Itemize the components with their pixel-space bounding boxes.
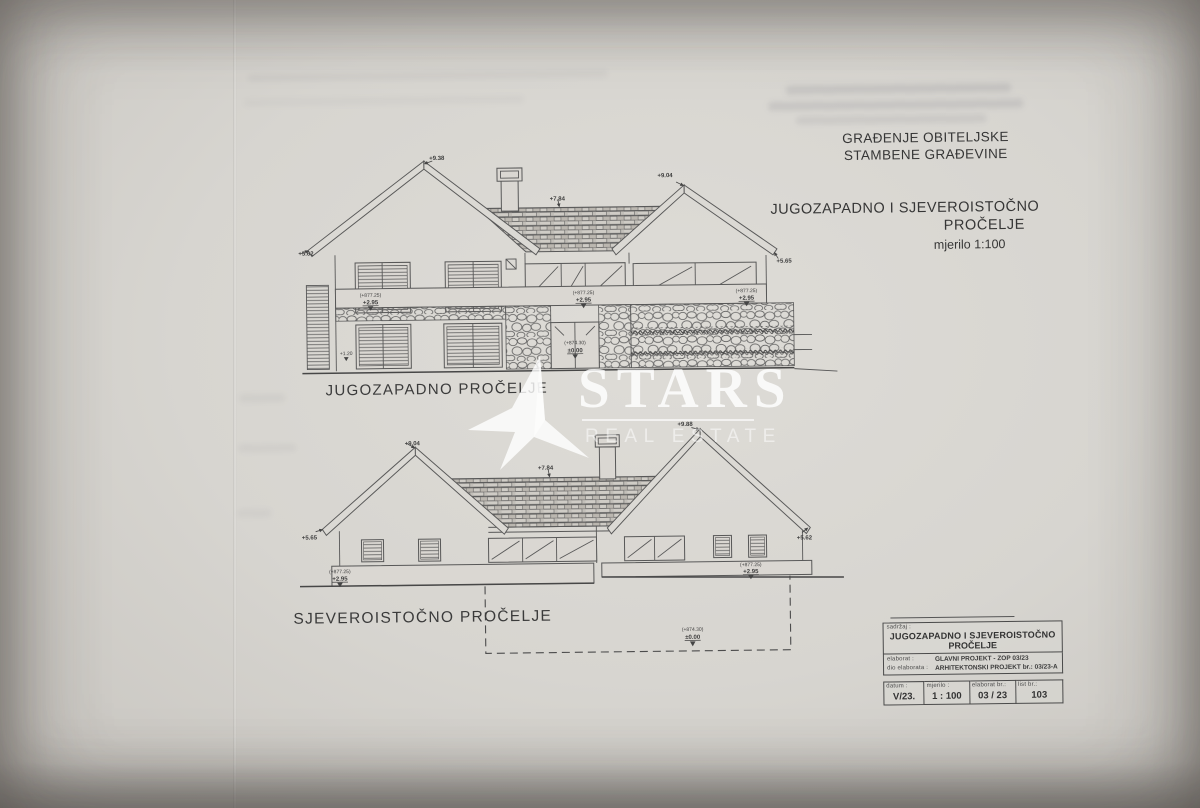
list-br-cell: list br.: 103 [1016,679,1063,704]
svg-text:+1.20: +1.20 [340,351,353,357]
svg-text:(+877.25): (+877.25) [740,562,762,568]
elaborat-br-cell: elaborat br.: 03 / 23 [970,680,1017,705]
title-block-content: sadržaj : JUGOZAPADNO I SJEVEROISTOČNO P… [882,620,1062,654]
title-block-rule [890,616,1014,619]
level-label-plinth: +1.20 [340,351,353,361]
level-label-basement: (+874.30) ±0.00 [682,627,704,647]
watermark-divider [582,419,754,421]
watermark-brand: STARS [578,356,793,421]
svg-text:(+874.30): (+874.30) [682,627,704,633]
content-line2: PROČELJE [887,639,1059,651]
photographed-drawing-sheet: GRAĐENJE OBITELJSKE STAMBENE GRAĐEVINE J… [0,0,1200,808]
project-row: dio elaborata : ARHITEKTONSKI PROJEKT br… [887,663,1059,673]
title-block-meta: datum : V/23. mjerilo : 1 : 100 elaborat… [883,679,1063,705]
title-block: sadržaj : JUGOZAPADNO I SJEVEROISTOČNO P… [882,612,1063,705]
title-block-project: elaborat : GLAVNI PROJEKT - ZOP 03/23 di… [883,652,1063,675]
elaborat-label: elaborat : [887,656,935,664]
dim-eave-right: +5.62 [797,535,813,541]
dim-ridge-mid: +7.84 [550,196,566,202]
dim-eave-right: +5.65 [776,259,792,265]
svg-text:(+877.25): (+877.25) [360,293,382,299]
ne-elevation-caption: SJEVEROISTOČNO PROČELJE [293,608,552,629]
dio-elaborata-label: dio elaborata : [887,664,935,672]
mjerilo-cell: mjerilo : 1 : 100 [925,681,971,706]
svg-text:(+877.25): (+877.25) [736,288,758,294]
vent-box-symbol [506,259,516,269]
elaborat-value: GLAVNI PROJEKT - ZOP 03/23 [935,655,1029,664]
sw-elevation-drawing: +9.38 +9.04 +5.62 +5.65 +7.84 (+877.25) … [297,151,837,378]
dim-eave-left: +5.65 [302,535,318,541]
dim-ridge-right: +9.04 [657,173,673,179]
svg-text:(+877.25): (+877.25) [573,290,595,296]
svg-text:(+877.25): (+877.25) [329,569,351,575]
datum-cell: datum : V/23. [883,681,925,706]
watermark-subtitle: REAL ESTATE [585,426,782,448]
dio-elaborata-value: ARHITEKTONSKI PROJEKT br.: 03/23-A [935,663,1058,672]
